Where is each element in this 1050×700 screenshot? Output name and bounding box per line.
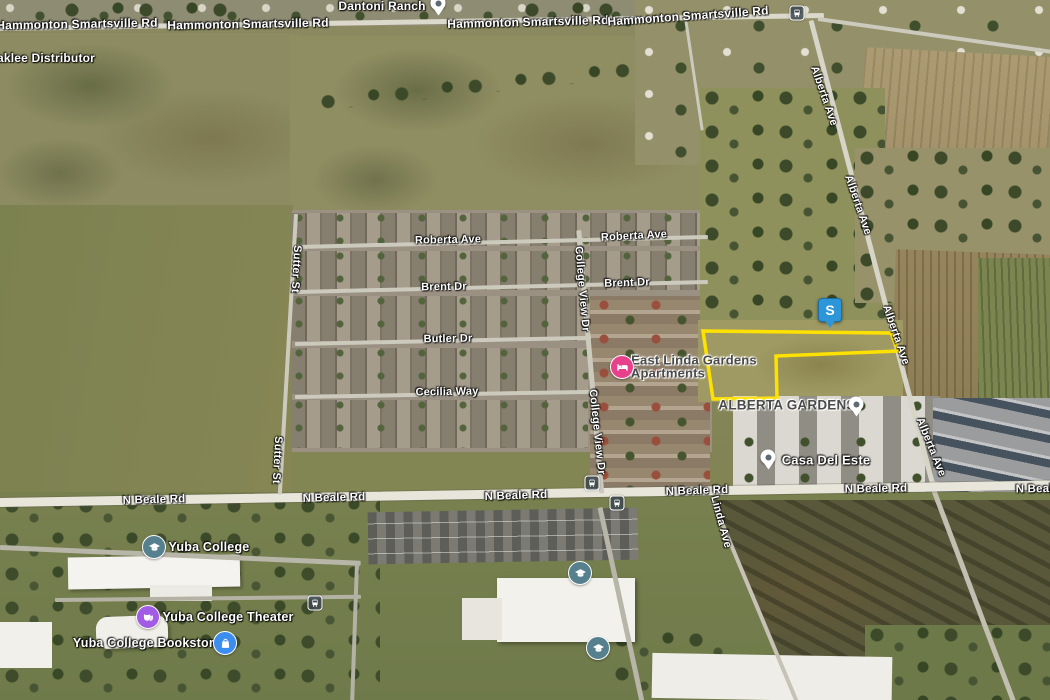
lodging-icon[interactable] xyxy=(610,355,634,379)
dantoni-ranch-pin[interactable] xyxy=(431,0,446,11)
transit-station-icon[interactable] xyxy=(790,6,805,21)
property-pin-s[interactable]: S xyxy=(818,298,842,322)
markers-layer: S xyxy=(0,0,1050,700)
shopping-icon[interactable] xyxy=(213,631,237,655)
school-icon[interactable] xyxy=(142,535,166,559)
alberta-gardens-pin[interactable] xyxy=(849,397,864,412)
school-icon[interactable] xyxy=(586,636,610,660)
casa-del-este-pin[interactable] xyxy=(761,450,776,465)
school-icon[interactable] xyxy=(568,561,592,585)
transit-station-icon[interactable] xyxy=(610,496,625,511)
transit-station-icon[interactable] xyxy=(308,596,323,611)
theater-icon[interactable] xyxy=(136,605,160,629)
satellite-map[interactable]: Hammonton Smartsville RdHammonton Smarts… xyxy=(0,0,1050,700)
transit-station-icon[interactable] xyxy=(585,476,600,491)
property-pin-label: S xyxy=(825,302,834,318)
